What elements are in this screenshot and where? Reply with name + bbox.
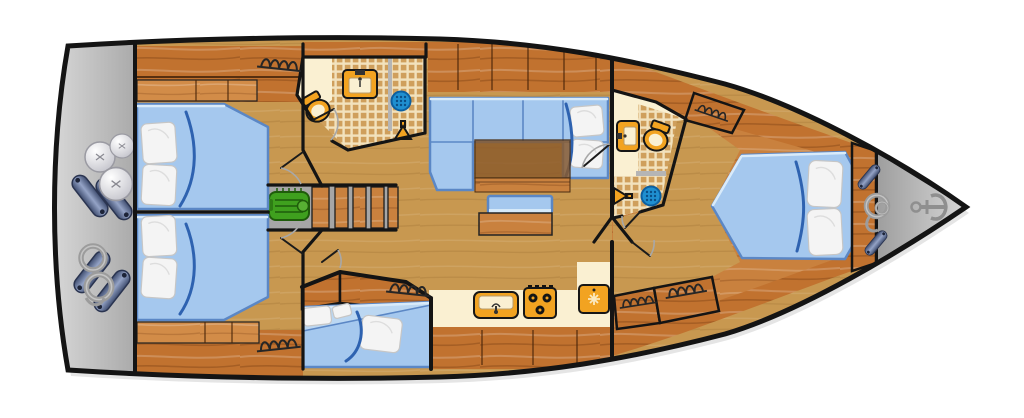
stove-icon	[524, 285, 556, 318]
fender-ball-icon	[110, 134, 134, 158]
shower-partition	[388, 57, 392, 131]
dining-table	[475, 140, 570, 178]
bench-base	[479, 213, 552, 235]
salon-overhead-cabinets	[428, 42, 612, 92]
pillow	[141, 257, 178, 299]
sink-icon	[474, 292, 518, 318]
engine-icon	[267, 188, 309, 220]
sofa-pillow	[570, 105, 604, 138]
yacht-floor-plan: sailing-yacht-interior-floor-plan	[0, 0, 1024, 418]
pillow	[302, 306, 332, 327]
floor-plan-svg: sailing-yacht-interior-floor-plan	[0, 0, 1024, 418]
pillow	[359, 315, 403, 354]
dining-table-edge	[475, 178, 570, 192]
aft-cabin-starboard	[137, 215, 268, 320]
pillow	[807, 160, 843, 208]
shower-partition	[636, 171, 666, 176]
pillow	[141, 122, 178, 164]
fender-ball-icon	[100, 168, 133, 201]
shower-drain-icon	[392, 92, 411, 111]
aft-cabin-port	[137, 104, 268, 209]
sink-icon	[617, 121, 639, 151]
pillow	[807, 208, 843, 256]
shower-drain-icon	[642, 187, 661, 206]
sink-icon	[343, 70, 377, 98]
pillow	[141, 164, 177, 206]
refrigerator-icon	[579, 285, 609, 313]
pillow	[141, 215, 177, 257]
